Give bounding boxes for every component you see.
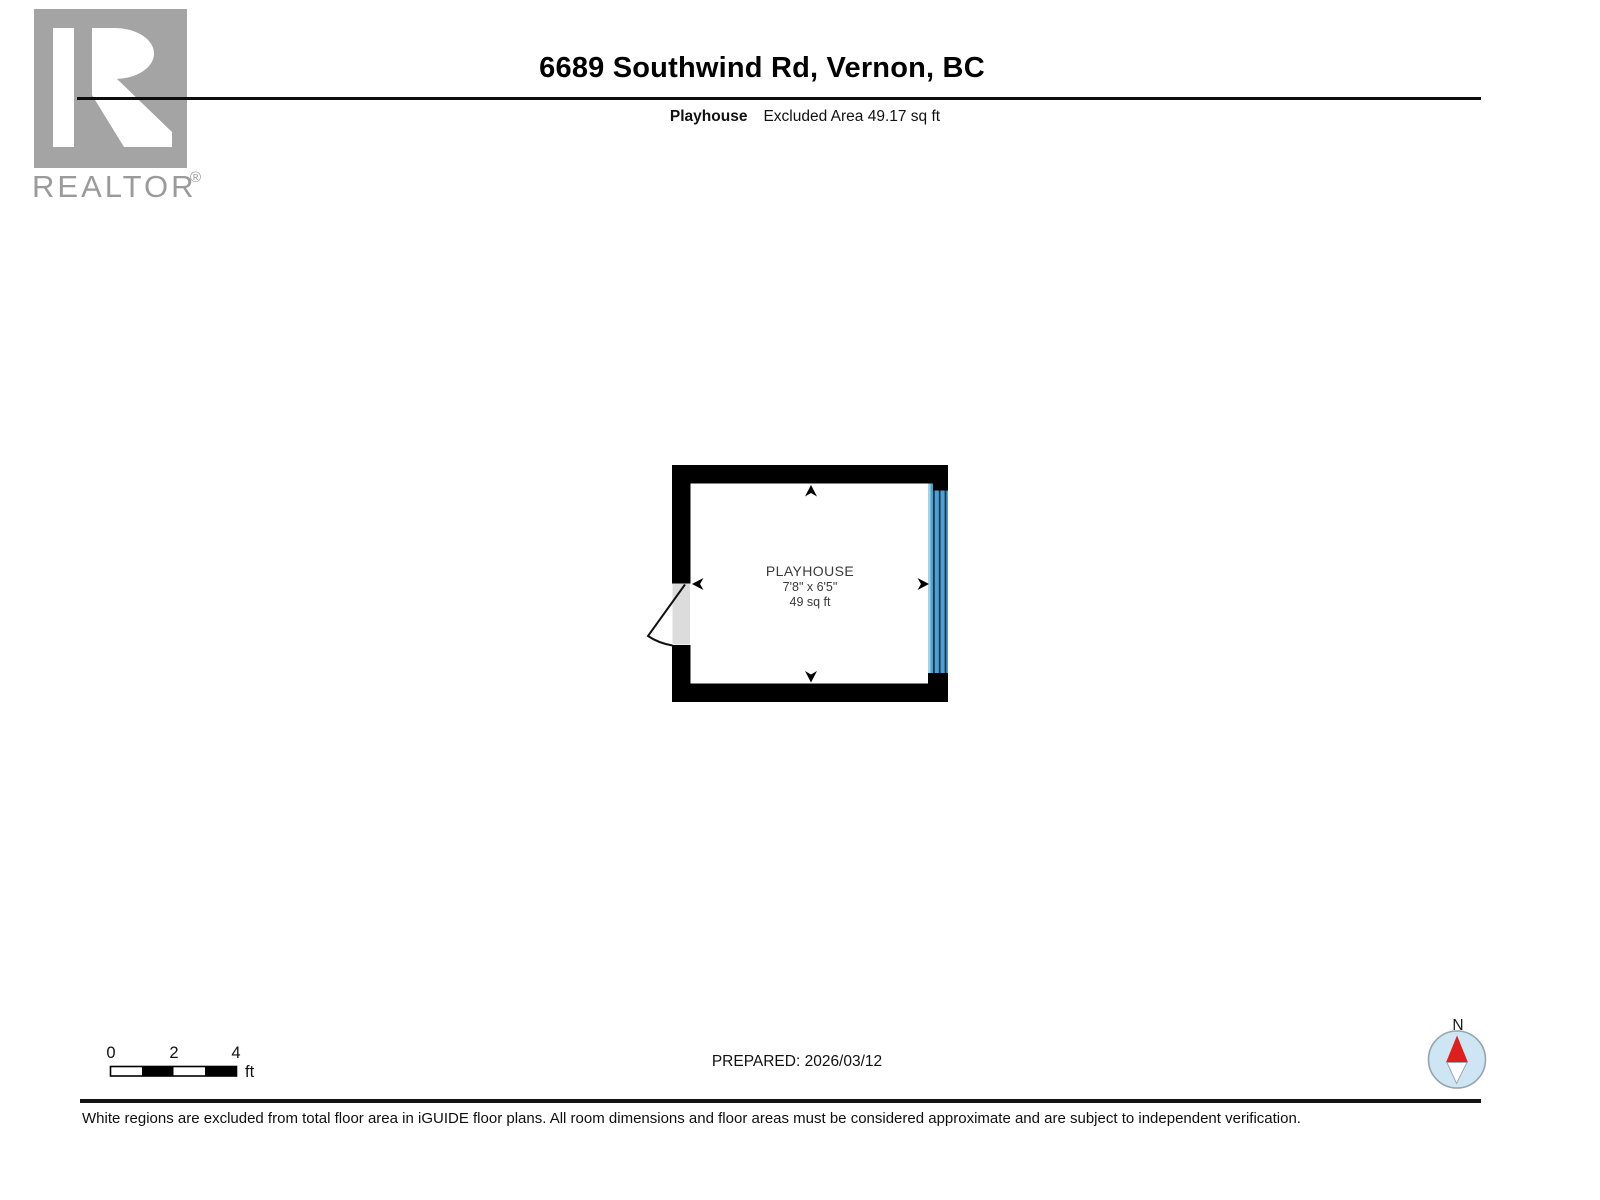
room-area-label: 49 sq ft xyxy=(790,595,832,609)
scale-bar-segment xyxy=(142,1067,174,1077)
scale-tick-2: 2 xyxy=(169,1044,178,1062)
wall-left-upper xyxy=(672,465,691,584)
wall-right-top-notch xyxy=(933,483,948,491)
wall-top xyxy=(672,465,948,484)
subtitle-excluded-area: Excluded Area 49.17 sq ft xyxy=(763,108,940,125)
registered-trademark-icon: ® xyxy=(190,169,201,186)
scale-tick-0: 0 xyxy=(106,1044,115,1062)
window-mullion-line xyxy=(945,484,947,675)
wall-bottom xyxy=(672,684,948,703)
disclaimer-text: White regions are excluded from total fl… xyxy=(82,1110,1502,1127)
subtitle-room-name: Playhouse xyxy=(670,108,748,125)
scale-bar: 0 2 4 ft xyxy=(95,1038,285,1086)
footer-divider xyxy=(80,1099,1481,1103)
dimension-arrow-right-icon xyxy=(918,578,930,590)
prepared-date: PREPARED: 2026/03/12 xyxy=(597,1053,997,1071)
dimension-arrow-up-icon xyxy=(805,485,817,497)
door-leaf xyxy=(673,584,691,645)
scale-unit-label: ft xyxy=(245,1063,255,1081)
realtor-r-left-bar xyxy=(53,28,74,147)
page-title: 6689 Southwind Rd, Vernon, BC xyxy=(77,52,1447,85)
window-mullion-line xyxy=(933,484,935,675)
wall-left-lower xyxy=(672,645,691,702)
scale-bar-segment xyxy=(205,1067,237,1077)
north-compass: N xyxy=(1420,1008,1496,1094)
scale-tick-4: 4 xyxy=(231,1044,240,1062)
dimension-arrow-left-icon xyxy=(692,578,704,590)
room-dimensions-label: 7'8" x 6'5" xyxy=(783,580,838,594)
window-mullion-line xyxy=(939,484,941,675)
room-name-label: PLAYHOUSE xyxy=(766,563,854,579)
wall-right-bottom-corner xyxy=(928,673,948,685)
playhouse-floor-plan: PLAYHOUSE 7'8" x 6'5" 49 sq ft xyxy=(620,450,960,715)
floor-plan-page: REALTOR ® 6689 Southwind Rd, Vernon, BC … xyxy=(0,0,1600,1200)
title-underline xyxy=(77,97,1481,100)
page-subtitle: PlayhouseExcluded Area 49.17 sq ft xyxy=(77,108,1533,126)
dimension-arrow-down-icon xyxy=(805,671,817,683)
realtor-wordmark: REALTOR xyxy=(32,169,197,204)
